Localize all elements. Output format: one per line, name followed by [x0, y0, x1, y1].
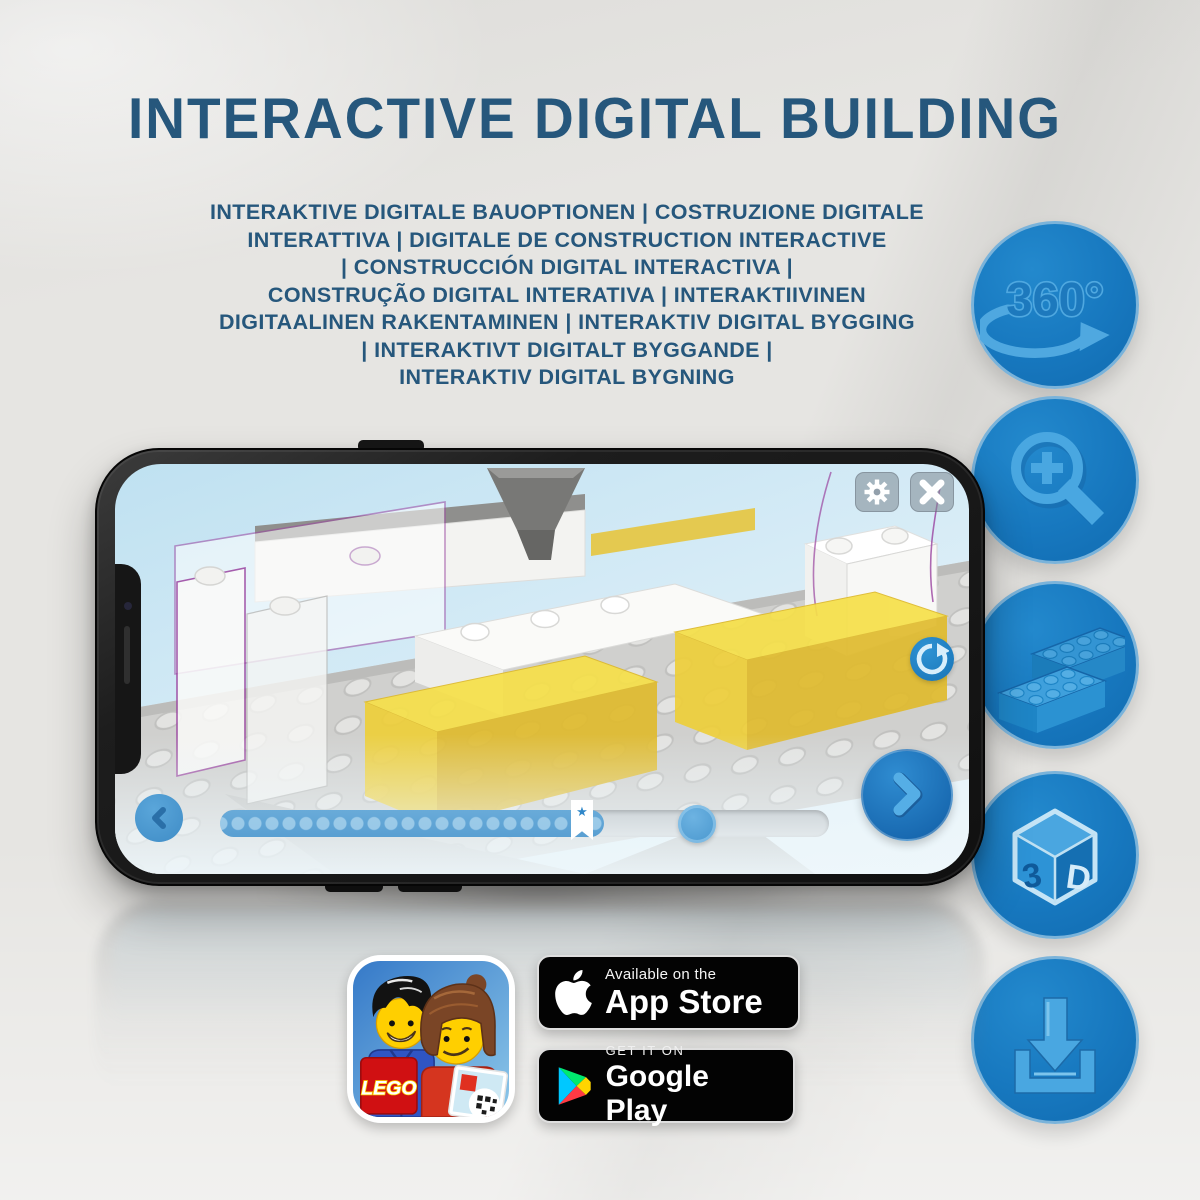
feature-bricks	[971, 581, 1139, 749]
subtitle-line: | CONSTRUCCIÓN DIGITAL INTERACTIVA |	[0, 254, 1134, 282]
subtitle-line: INTERATTIVA | DIGITALE DE CONSTRUCTION I…	[0, 227, 1134, 255]
360-rotation-icon: 360°	[980, 230, 1130, 380]
progress-fill	[220, 810, 604, 837]
google-play-name: Google Play	[606, 1060, 777, 1128]
subtitle-line: CONSTRUÇÃO DIGITAL INTERATIVA | INTERAKT…	[0, 282, 1134, 310]
google-play-tagline: GET IT ON	[606, 1043, 777, 1058]
close-button[interactable]	[910, 472, 954, 512]
360-label: 360°	[1006, 273, 1103, 326]
previous-step-button[interactable]	[135, 794, 183, 842]
3d-view-cube-icon: 3 D	[985, 785, 1125, 925]
feature-360-rotation: 360°	[971, 221, 1139, 389]
zoom-in-magnifier-icon	[985, 410, 1125, 550]
lego-app-artwork: LEGO	[353, 961, 509, 1117]
page-title: INTERACTIVE DIGITAL BUILDING	[0, 84, 1190, 151]
chevron-right-icon	[881, 769, 933, 821]
download-icon	[985, 970, 1125, 1110]
cube-letter-d: D	[1064, 858, 1094, 899]
feature-zoom	[971, 396, 1139, 564]
google-play-icon	[555, 1065, 593, 1107]
next-step-button[interactable]	[861, 749, 953, 841]
app-store-tagline: Available on the	[605, 966, 763, 983]
slider-thumb[interactable]	[678, 805, 716, 843]
chevron-left-icon	[146, 805, 172, 831]
gear-icon	[863, 478, 891, 506]
subtitle-line: INTERAKTIVE DIGITALE BAUOPTIONEN | COSTR…	[0, 199, 1134, 227]
lego-app-icon[interactable]: LEGO	[347, 955, 515, 1123]
feature-download	[971, 956, 1139, 1124]
front-camera	[124, 602, 132, 610]
feature-3d-view: 3 D	[971, 771, 1139, 939]
settings-button[interactable]	[855, 472, 899, 512]
phone-frame: ★	[95, 448, 985, 886]
app-store-badge[interactable]: Available on the App Store	[537, 955, 800, 1030]
google-play-badge[interactable]: GET IT ON Google Play	[537, 1048, 795, 1123]
subtitle-line: DIGITAALINEN RAKENTAMINEN | INTERAKTIV D…	[0, 309, 1134, 337]
subtitle-block: INTERAKTIVE DIGITALE BAUOPTIONEN | COSTR…	[0, 199, 1134, 392]
apple-icon	[555, 970, 592, 1015]
rotate-model-button[interactable]	[910, 637, 954, 681]
rotate-icon	[915, 642, 949, 676]
subtitle-line: | INTERAKTIVT DIGITALT BYGGANDE |	[0, 337, 1134, 365]
app-store-name: App Store	[605, 984, 763, 1020]
close-icon	[919, 479, 945, 505]
phone-notch	[115, 564, 141, 774]
earpiece-speaker	[124, 626, 130, 684]
subtitle-line: INTERAKTIV DIGITAL BYGNING	[0, 364, 1134, 392]
lego-bricks-icon	[985, 595, 1125, 735]
build-progress-slider[interactable]: ★	[220, 810, 829, 837]
lego-logo-text: LEGO	[361, 1077, 416, 1099]
phone-screen: ★	[115, 464, 969, 874]
